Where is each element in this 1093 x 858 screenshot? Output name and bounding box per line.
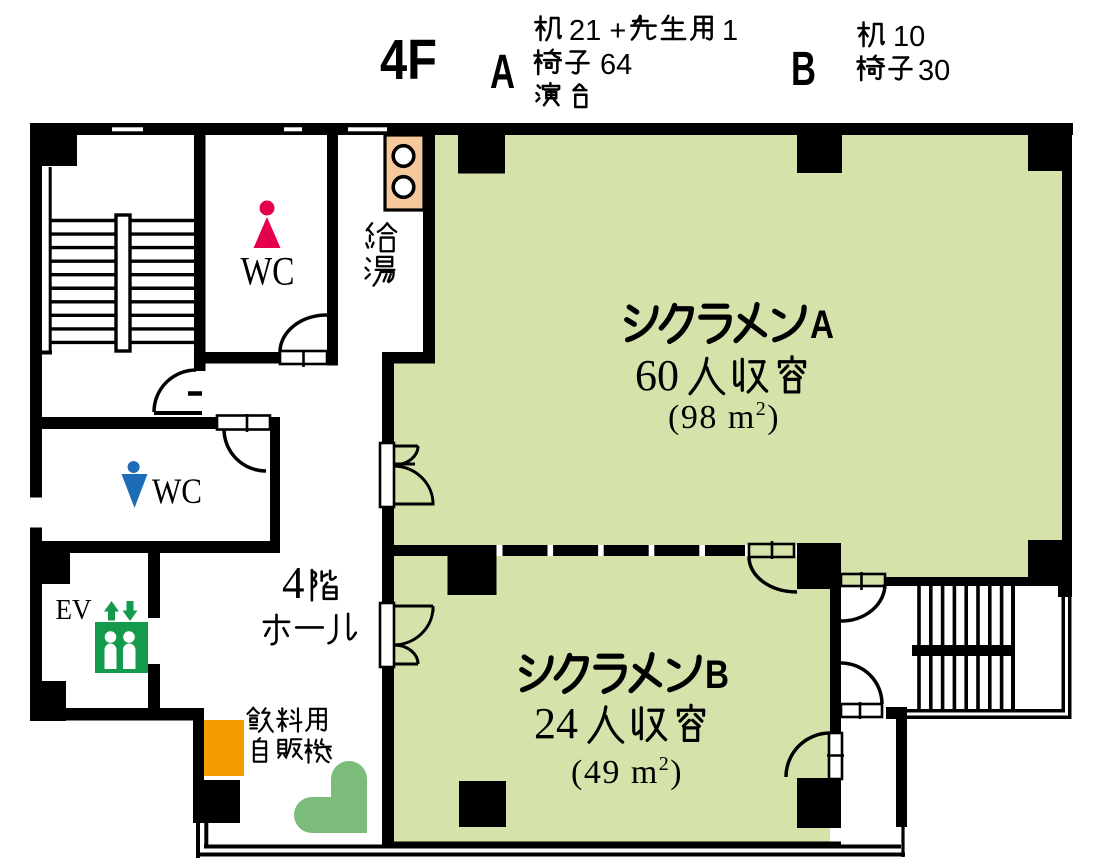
- svg-text:1: 1: [722, 15, 738, 47]
- svg-text:B: B: [791, 43, 816, 96]
- svg-text:EV: EV: [56, 595, 92, 626]
- svg-text:60: 60: [635, 351, 679, 400]
- svg-text:24: 24: [534, 699, 578, 748]
- svg-text:21 +: 21 +: [569, 15, 626, 47]
- svg-text:10: 10: [893, 21, 925, 53]
- svg-text:64: 64: [600, 49, 632, 81]
- svg-text:WC: WC: [241, 249, 295, 294]
- svg-text:WC: WC: [152, 471, 202, 511]
- svg-text:4F: 4F: [380, 28, 437, 92]
- svg-text:4: 4: [282, 558, 305, 608]
- svg-text:30: 30: [918, 55, 950, 87]
- svg-text:A: A: [490, 46, 515, 99]
- svg-text:A: A: [810, 303, 834, 347]
- svg-text:B: B: [705, 653, 729, 697]
